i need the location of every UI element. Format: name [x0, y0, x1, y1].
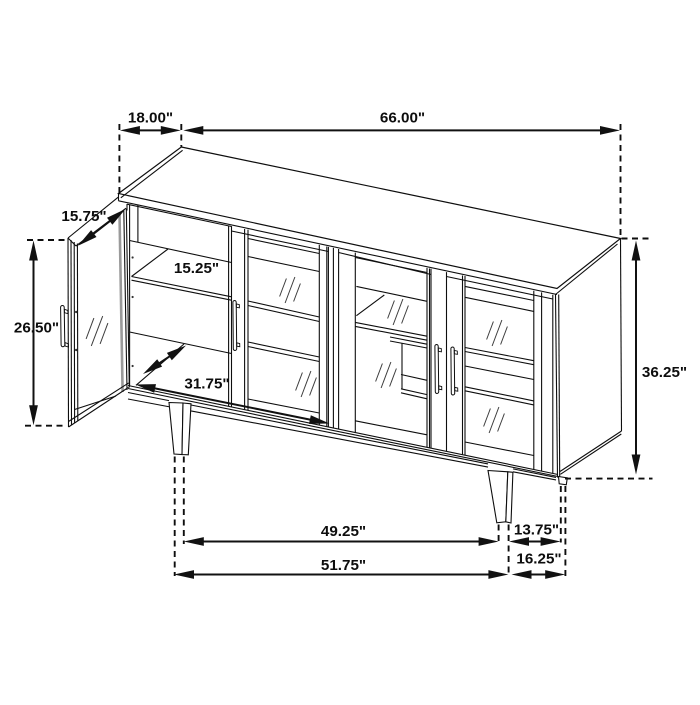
svg-text:15.75": 15.75": [61, 208, 106, 225]
svg-text:18.00": 18.00": [128, 110, 173, 127]
svg-text:66.00": 66.00": [380, 110, 425, 127]
svg-text:49.25": 49.25": [321, 523, 366, 540]
svg-text:16.25": 16.25": [516, 551, 561, 568]
svg-text:36.25": 36.25": [642, 364, 687, 381]
svg-text:51.75": 51.75": [321, 557, 366, 574]
svg-text:15.25": 15.25": [174, 260, 219, 277]
svg-text:26.50": 26.50": [14, 320, 59, 337]
svg-text:31.75": 31.75": [184, 376, 229, 393]
svg-text:13.75": 13.75": [514, 522, 559, 539]
